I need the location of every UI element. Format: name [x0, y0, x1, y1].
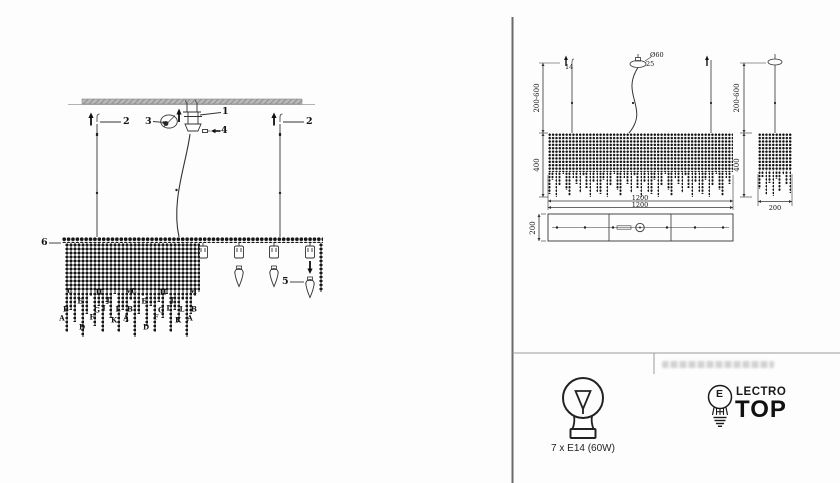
callout-3: 3: [145, 116, 152, 127]
bead-strand: [660, 172, 663, 186]
fringe-letter: C: [67, 287, 73, 296]
bead-strand: [653, 172, 656, 180]
fringe-letter: K: [175, 316, 181, 325]
bead-strand: [718, 172, 721, 190]
side-suspension-dim: 200-600: [733, 83, 741, 112]
bead-strand: [602, 172, 605, 180]
bead-strand: [633, 172, 636, 176]
fringe-letter: H: [160, 288, 167, 297]
bead-strand: [565, 172, 568, 190]
bead-strand: [548, 172, 551, 194]
fringe-letter: G: [158, 306, 164, 315]
side-view-bead-band: [758, 133, 792, 171]
bead-strand: [568, 172, 571, 196]
left-hanger-wire: [88, 113, 121, 238]
canopy-bracket-assembly: [153, 100, 221, 237]
fringe-letter: A: [59, 314, 64, 323]
bead-strand: [782, 171, 785, 175]
front-height-dim: 400: [533, 158, 541, 171]
bead-strand: [582, 172, 585, 176]
bead-strand: [613, 172, 616, 174]
installation-sheet: 1 2 2 3 4 5 6 CEBADFGHIJKLMCEBADFGHIJKLM…: [0, 0, 840, 483]
bead-strand: [558, 172, 561, 186]
bead-strand: [643, 172, 646, 182]
bead-strand: [85, 292, 88, 314]
bead-strand: [728, 172, 731, 184]
bulb-sockets: [199, 243, 315, 258]
bead-strand: [667, 172, 670, 190]
bead-strand: [715, 172, 718, 174]
bead-strand: [778, 171, 781, 191]
bead-strand: [592, 172, 595, 182]
bead-strand: [137, 292, 140, 314]
bead-strand: [89, 292, 92, 296]
bead-strand: [596, 172, 599, 192]
bead-curtain-left-panel: [65, 243, 200, 292]
right-hanger-wire: [271, 113, 304, 238]
bead-strand: [704, 172, 707, 180]
suspension-cable: [177, 134, 190, 237]
candle-bulbs: [235, 261, 314, 298]
bead-strand: [772, 171, 775, 196]
bead-strand: [585, 172, 588, 188]
fringe-letter: B: [127, 305, 133, 314]
bead-strand: [725, 172, 728, 178]
fringe-letter: D: [79, 323, 85, 332]
front-suspension-dim: 200-600: [533, 83, 541, 112]
bead-strand: [765, 171, 768, 195]
brand-bulb-letter: E: [716, 388, 723, 400]
callout-5: 5: [282, 276, 289, 287]
side-height-dim: 400: [733, 158, 741, 171]
callout-1: 1: [222, 106, 229, 117]
bead-strand: [589, 172, 592, 197]
bead-strand: [674, 172, 677, 178]
bead-strand: [626, 172, 629, 184]
screw: [203, 130, 208, 133]
fringe-letter: E: [141, 297, 146, 306]
bead-strand: [121, 292, 124, 310]
bead-strand: [73, 292, 76, 322]
bead-strand: [113, 292, 116, 294]
fringe-letter: A: [187, 314, 192, 323]
fringe-letter: K: [111, 316, 117, 325]
callout-4: 4: [221, 125, 228, 136]
bead-strand: [555, 172, 558, 197]
fringe-letter: C: [131, 287, 137, 296]
side-width-dim: 200: [769, 204, 781, 212]
canopy-diameter-dim: Ø60: [650, 51, 664, 59]
bead-strand: [606, 172, 609, 197]
fringe-letter: A: [123, 314, 128, 323]
bead-strand: [619, 172, 622, 196]
bead-strand: [775, 171, 778, 179]
fringe-letter: D: [143, 323, 149, 332]
bead-strand: [677, 172, 680, 184]
bead-strand: [694, 172, 697, 182]
bead-strand: [684, 172, 687, 176]
plan-view: [539, 214, 733, 241]
bead-strand: [785, 171, 788, 185]
bead-strand: [691, 172, 694, 197]
bead-strand: [647, 172, 650, 192]
bulb-spec-icon: [563, 378, 603, 438]
bead-strand: [572, 172, 575, 178]
bulb-spec-label: 7 x E14 (60W): [543, 443, 623, 454]
fringe-letter: B: [63, 305, 69, 314]
bead-strand: [681, 172, 684, 193]
bead-strand: [551, 172, 554, 180]
bead-strand: [698, 172, 701, 192]
bead-strand: [664, 172, 667, 174]
bead-strand: [562, 172, 565, 174]
brand-name-part2: TOP: [735, 396, 787, 424]
bead-strand: [636, 172, 639, 188]
callout-6: 6: [41, 237, 48, 248]
bead-strand: [623, 172, 626, 178]
bead-strand: [599, 172, 602, 194]
bead-strand: [630, 172, 633, 193]
callout-2-left: 2: [123, 116, 130, 127]
frame-end-strand: [319, 243, 323, 292]
fringe-letter: G: [94, 306, 100, 315]
fringe-letter: B: [191, 305, 197, 314]
fringe-letter: J: [106, 296, 109, 305]
watermark-blurred-text: [662, 361, 774, 368]
bead-strand: [758, 171, 761, 189]
bead-strand: [657, 172, 660, 197]
bead-strand: [789, 171, 792, 193]
fringe-letter: L: [116, 305, 121, 314]
bead-strand: [579, 172, 582, 193]
bead-strand: [181, 292, 184, 300]
hook-size-dim: 14: [565, 63, 573, 71]
bead-strand: [670, 172, 673, 196]
fringe-letter: I: [166, 304, 169, 313]
bead-strand: [687, 172, 690, 188]
fringe-letter: E: [77, 297, 82, 306]
bead-strand: [609, 172, 612, 186]
callout-2-right: 2: [306, 116, 313, 127]
bead-strand: [768, 171, 771, 183]
bead-strand: [761, 171, 764, 177]
bead-strand: [149, 292, 152, 306]
bead-strand: [575, 172, 578, 184]
fringe-letter: I: [102, 304, 105, 313]
bead-strand: [721, 172, 724, 196]
ceiling-bar: [82, 99, 302, 104]
bead-strand: [141, 292, 144, 296]
front-view-bead-band: [548, 133, 733, 172]
bead-strand: [650, 172, 653, 194]
fringe-letter: M: [189, 287, 197, 296]
bead-strand: [708, 172, 711, 197]
fringe-letter: J: [170, 296, 173, 305]
front-width-dim-2: 1200: [632, 201, 649, 209]
fringe-letter: L: [180, 305, 185, 314]
side-view-bead-fringe: [758, 171, 792, 197]
plan-depth-dim: 200: [529, 221, 537, 234]
fringe-letter: H: [96, 288, 103, 297]
bead-strand: [616, 172, 619, 190]
bead-strand: [133, 292, 136, 337]
bead-strand: [701, 172, 704, 194]
canopy-height-dim: 25: [646, 60, 654, 68]
bead-strand: [711, 172, 714, 186]
